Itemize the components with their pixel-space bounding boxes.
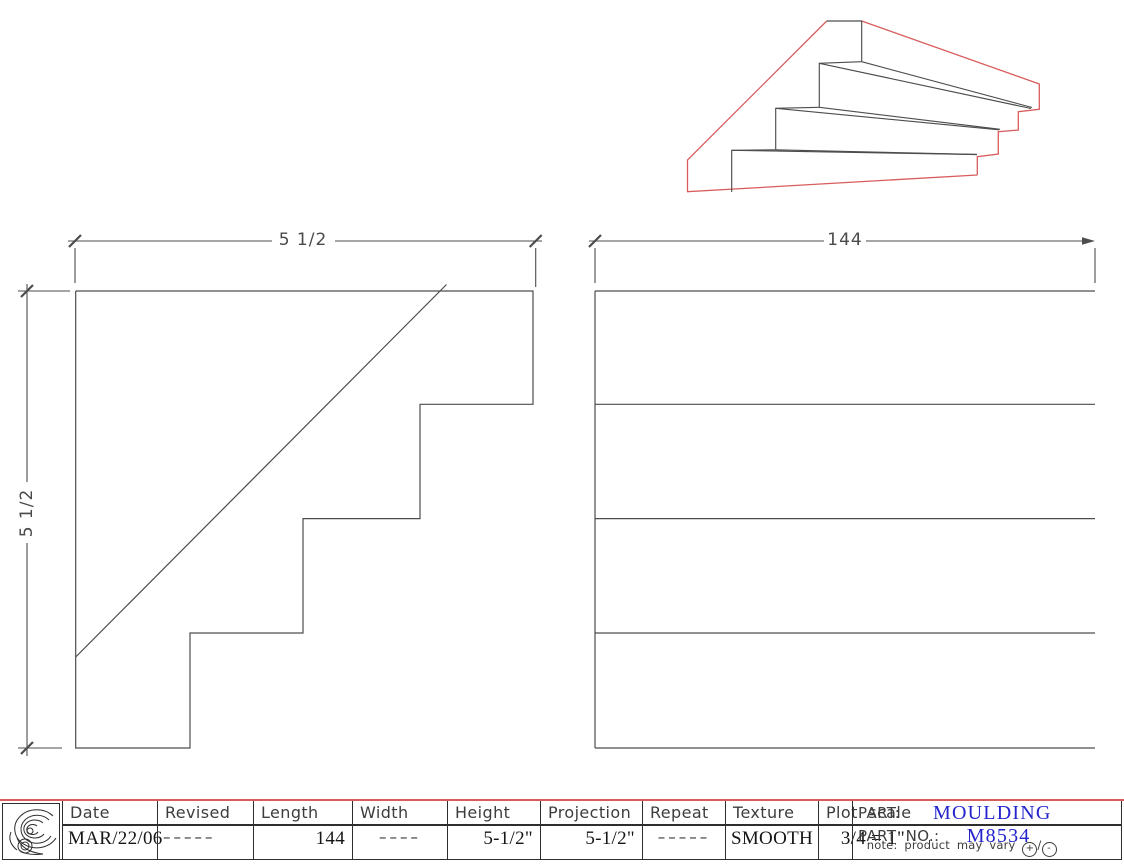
dim-length-text: 144 — [805, 230, 885, 250]
column-header: Length — [254, 803, 352, 824]
column-value: SMOOTH — [726, 828, 818, 858]
note-slash: / — [1037, 838, 1041, 852]
column-header: Date — [63, 803, 157, 824]
column-value: ––––– — [643, 828, 725, 858]
note: note: product may vary +/- — [867, 838, 1057, 857]
column-header: Width — [353, 803, 447, 824]
dim-profile-width-text: 5 1/2 — [263, 230, 343, 250]
length-view — [595, 291, 1095, 748]
perspective-silhouette — [688, 21, 1040, 192]
dim-profile-height-text: 5 1/2 — [17, 473, 37, 553]
note-text: note: product may vary — [867, 838, 1016, 852]
profile-view — [76, 285, 533, 749]
drawing-canvas — [0, 0, 1124, 800]
perspective-view — [688, 21, 1040, 192]
part-value: MOULDING — [933, 802, 1051, 825]
titleblock-col-width: Width–––– — [352, 801, 447, 859]
minus-circle-icon: - — [1042, 842, 1057, 857]
part-label: PART: — [858, 804, 900, 822]
titleblock-col-length: Length144 — [253, 801, 352, 859]
column-header: Projection — [541, 803, 642, 824]
titleblock-col-texture: TextureSMOOTH — [725, 801, 818, 859]
column-header: Height — [448, 803, 540, 824]
part-section: PART: MOULDING PART NO.: M8534 note: pro… — [852, 801, 1061, 859]
perspective-steps — [732, 21, 1032, 192]
column-value: 5-1/2" — [541, 828, 642, 858]
titleblock-col-repeat: Repeat––––– — [642, 801, 725, 859]
column-value: 144 — [254, 828, 352, 858]
titleblock-col-projection: Projection5-1/2" — [540, 801, 642, 859]
titleblock-col-date: DateMAR/22/06 — [62, 801, 157, 859]
column-value: ––––– — [158, 828, 253, 858]
column-header: Repeat — [643, 803, 725, 824]
titleblock-col-revised: Revised––––– — [157, 801, 253, 859]
plus-circle-icon: + — [1022, 842, 1037, 857]
drawing-sheet: 5 1/2 5 1/2 144 DateMAR/22/06Revis — [0, 0, 1124, 864]
column-value: 5-1/2" — [448, 828, 540, 858]
column-value: MAR/22/06 — [63, 828, 157, 858]
logo — [2, 803, 60, 860]
column-header: Revised — [158, 803, 253, 824]
titleblock-col-height: Height5-1/2" — [447, 801, 540, 859]
logo-scroll-icon — [3, 804, 59, 858]
titleblock: DateMAR/22/06Revised–––––Length144Width–… — [2, 801, 1122, 860]
column-header: Texture — [726, 803, 818, 824]
column-value: –––– — [353, 828, 447, 858]
